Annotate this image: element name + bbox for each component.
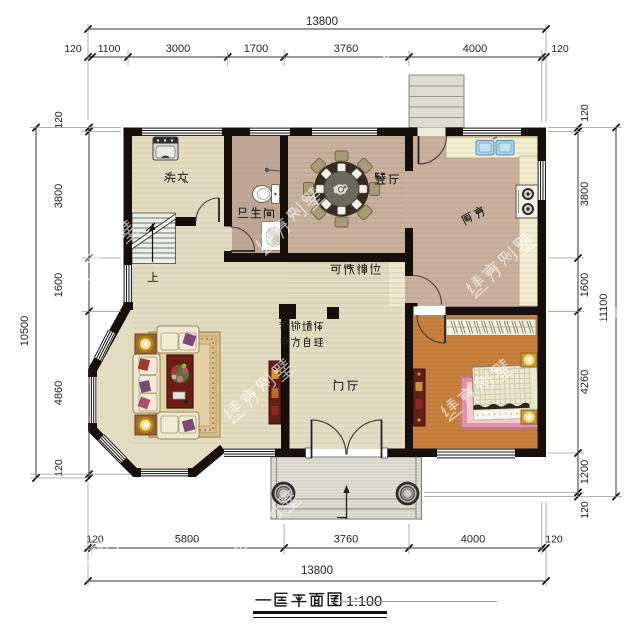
svg-text:13800: 13800 xyxy=(306,16,338,28)
svg-text:3800: 3800 xyxy=(579,182,591,206)
svg-text:120: 120 xyxy=(551,43,569,55)
svg-text:1600: 1600 xyxy=(579,273,591,297)
svg-text:5800: 5800 xyxy=(175,534,199,546)
svg-text:4000: 4000 xyxy=(463,43,487,55)
svg-text:4860: 4860 xyxy=(53,381,65,405)
svg-text:10500: 10500 xyxy=(19,316,31,347)
svg-text:120: 120 xyxy=(86,534,104,546)
svg-text:3800: 3800 xyxy=(53,184,65,208)
svg-text:4000: 4000 xyxy=(461,534,485,546)
svg-text:3760: 3760 xyxy=(334,43,358,55)
svg-text:4260: 4260 xyxy=(579,370,591,394)
svg-text:120: 120 xyxy=(579,501,591,519)
svg-text:11100: 11100 xyxy=(598,294,610,323)
svg-text:120: 120 xyxy=(64,43,82,55)
svg-text:13800: 13800 xyxy=(301,565,333,577)
svg-text:1200: 1200 xyxy=(579,460,591,484)
svg-text:1600: 1600 xyxy=(53,273,65,297)
svg-text:120: 120 xyxy=(545,534,563,546)
svg-text:1700: 1700 xyxy=(244,43,268,55)
svg-text:3760: 3760 xyxy=(334,534,358,546)
svg-text:120: 120 xyxy=(53,111,65,129)
svg-text:120: 120 xyxy=(579,104,591,122)
svg-text:1100: 1100 xyxy=(98,43,121,55)
svg-text:3000: 3000 xyxy=(166,43,190,55)
